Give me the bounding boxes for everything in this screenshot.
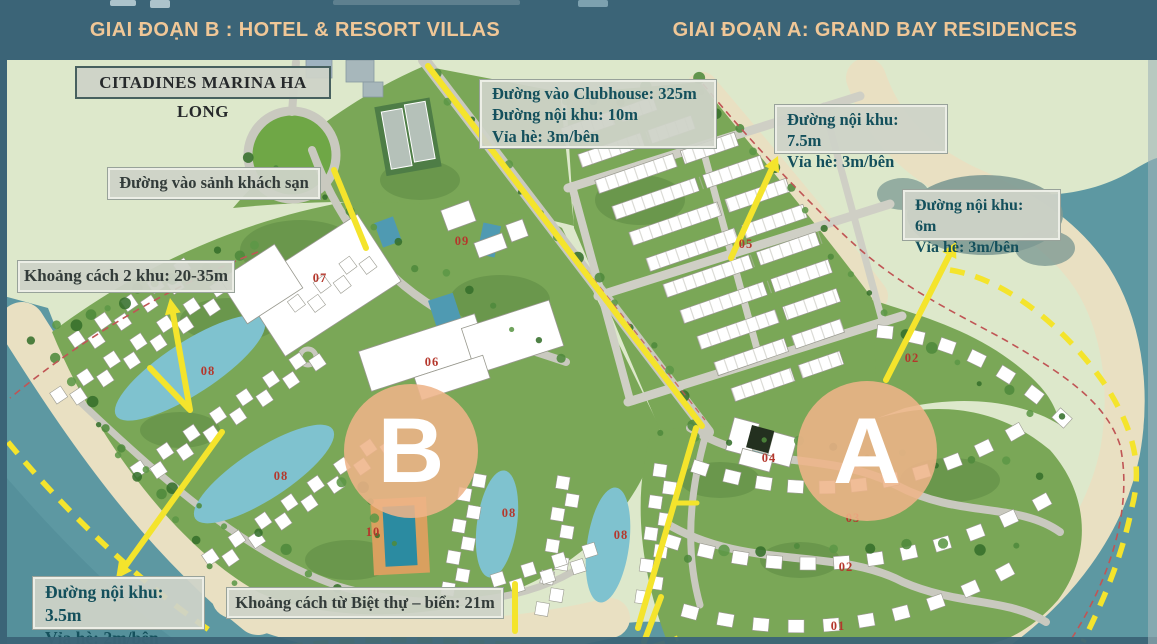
label-internal-road-7-5: Đường nội khu: 7.5m Vỉa hè: 3m/bên	[775, 105, 947, 153]
zone-number: 08	[195, 364, 221, 379]
phase-b-title: GIAI ĐOẠN B : HOTEL & RESORT VILLAS	[85, 0, 505, 60]
label-line: Đường nội khu: 7.5m	[787, 109, 935, 151]
zone-number: 04	[756, 451, 782, 466]
label-line: Vỉa hè: 3m/bên	[787, 151, 935, 172]
label-line: Vỉa hè: 3m/bên	[492, 126, 704, 147]
zone-number: 08	[608, 528, 634, 543]
label-line: Vỉa hè: 3m/bên	[915, 237, 1048, 258]
zone-number: 01	[825, 619, 851, 634]
phase-b-letter: B	[378, 399, 444, 504]
label-hotel-lobby-road: Đường vào sảnh khách sạn	[108, 168, 320, 199]
zone-number: 09	[449, 234, 475, 249]
deco-tab	[578, 0, 608, 7]
zone-number: 08	[268, 469, 294, 484]
phase-a-marker: A	[797, 381, 937, 521]
label-clubhouse-road: Đường vào Clubhouse: 325m Đường nội khu:…	[480, 80, 716, 148]
label-internal-road-6: Đường nội khu: 6m Vỉa hè: 3m/bên	[903, 190, 1060, 240]
label-citadines-marina: CITADINES MARINA HA LONG	[75, 66, 331, 99]
slide-bottom-edge	[0, 637, 1157, 644]
masterplan-slide: 07 09 06 05 02 04 03 02 01 08 08 08 08 1…	[0, 0, 1157, 644]
phase-a-letter: A	[833, 397, 901, 505]
zone-number: 05	[733, 237, 759, 252]
tennis-courts	[374, 97, 441, 176]
label-zone-gap: Khoảng cách 2 khu: 20-35m	[18, 261, 234, 292]
slide-right-edge	[1148, 60, 1157, 644]
phase-b-marker: B	[344, 384, 478, 518]
zone-number: 10	[360, 525, 386, 540]
zone-number: 08	[496, 506, 522, 521]
header-band: GIAI ĐOẠN B : HOTEL & RESORT VILLAS GIAI…	[0, 0, 1157, 60]
label-villa-sea-gap: Khoảng cách từ Biệt thự – biển: 21m	[227, 588, 503, 618]
label-line: Đường nội khu: 3.5m	[45, 581, 192, 627]
zone-number: 02	[899, 351, 925, 366]
slide-left-edge	[0, 60, 7, 644]
label-line: Đường nội khu: 6m	[915, 195, 1048, 237]
label-line: Đường vào Clubhouse: 325m	[492, 83, 704, 104]
label-line: Đường nội khu: 10m	[492, 104, 704, 125]
phase-a-title: GIAI ĐOẠN A: GRAND BAY RESIDENCES	[660, 0, 1090, 60]
zone-number: 02	[833, 560, 859, 575]
zone-number: 06	[419, 355, 445, 370]
zone-number: 07	[307, 271, 333, 286]
label-internal-road-3-5: Đường nội khu: 3.5m Vỉa hè: 2m/bên	[33, 577, 204, 629]
